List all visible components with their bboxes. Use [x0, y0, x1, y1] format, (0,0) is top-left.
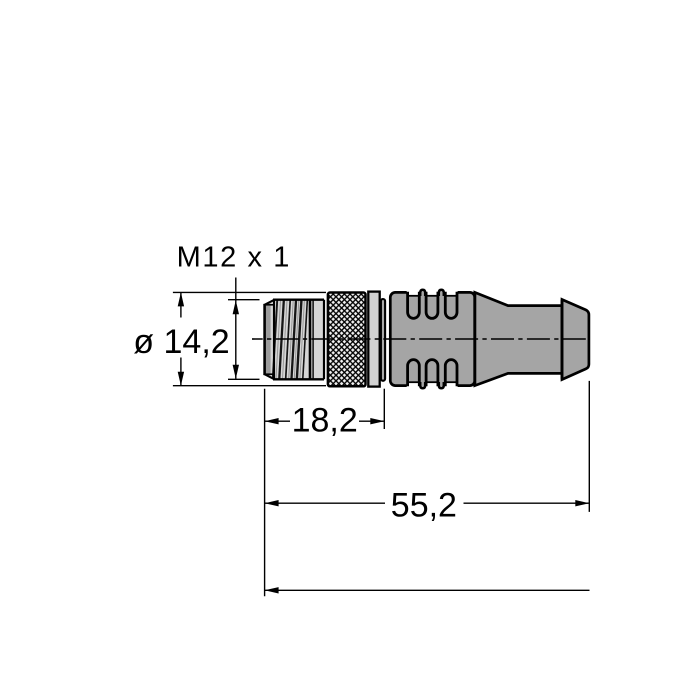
svg-text:55,2: 55,2: [391, 487, 457, 525]
svg-text:ø 14,2: ø 14,2: [133, 323, 229, 361]
svg-text:18,2: 18,2: [292, 402, 358, 440]
svg-text:M12 x 1: M12 x 1: [177, 242, 291, 274]
